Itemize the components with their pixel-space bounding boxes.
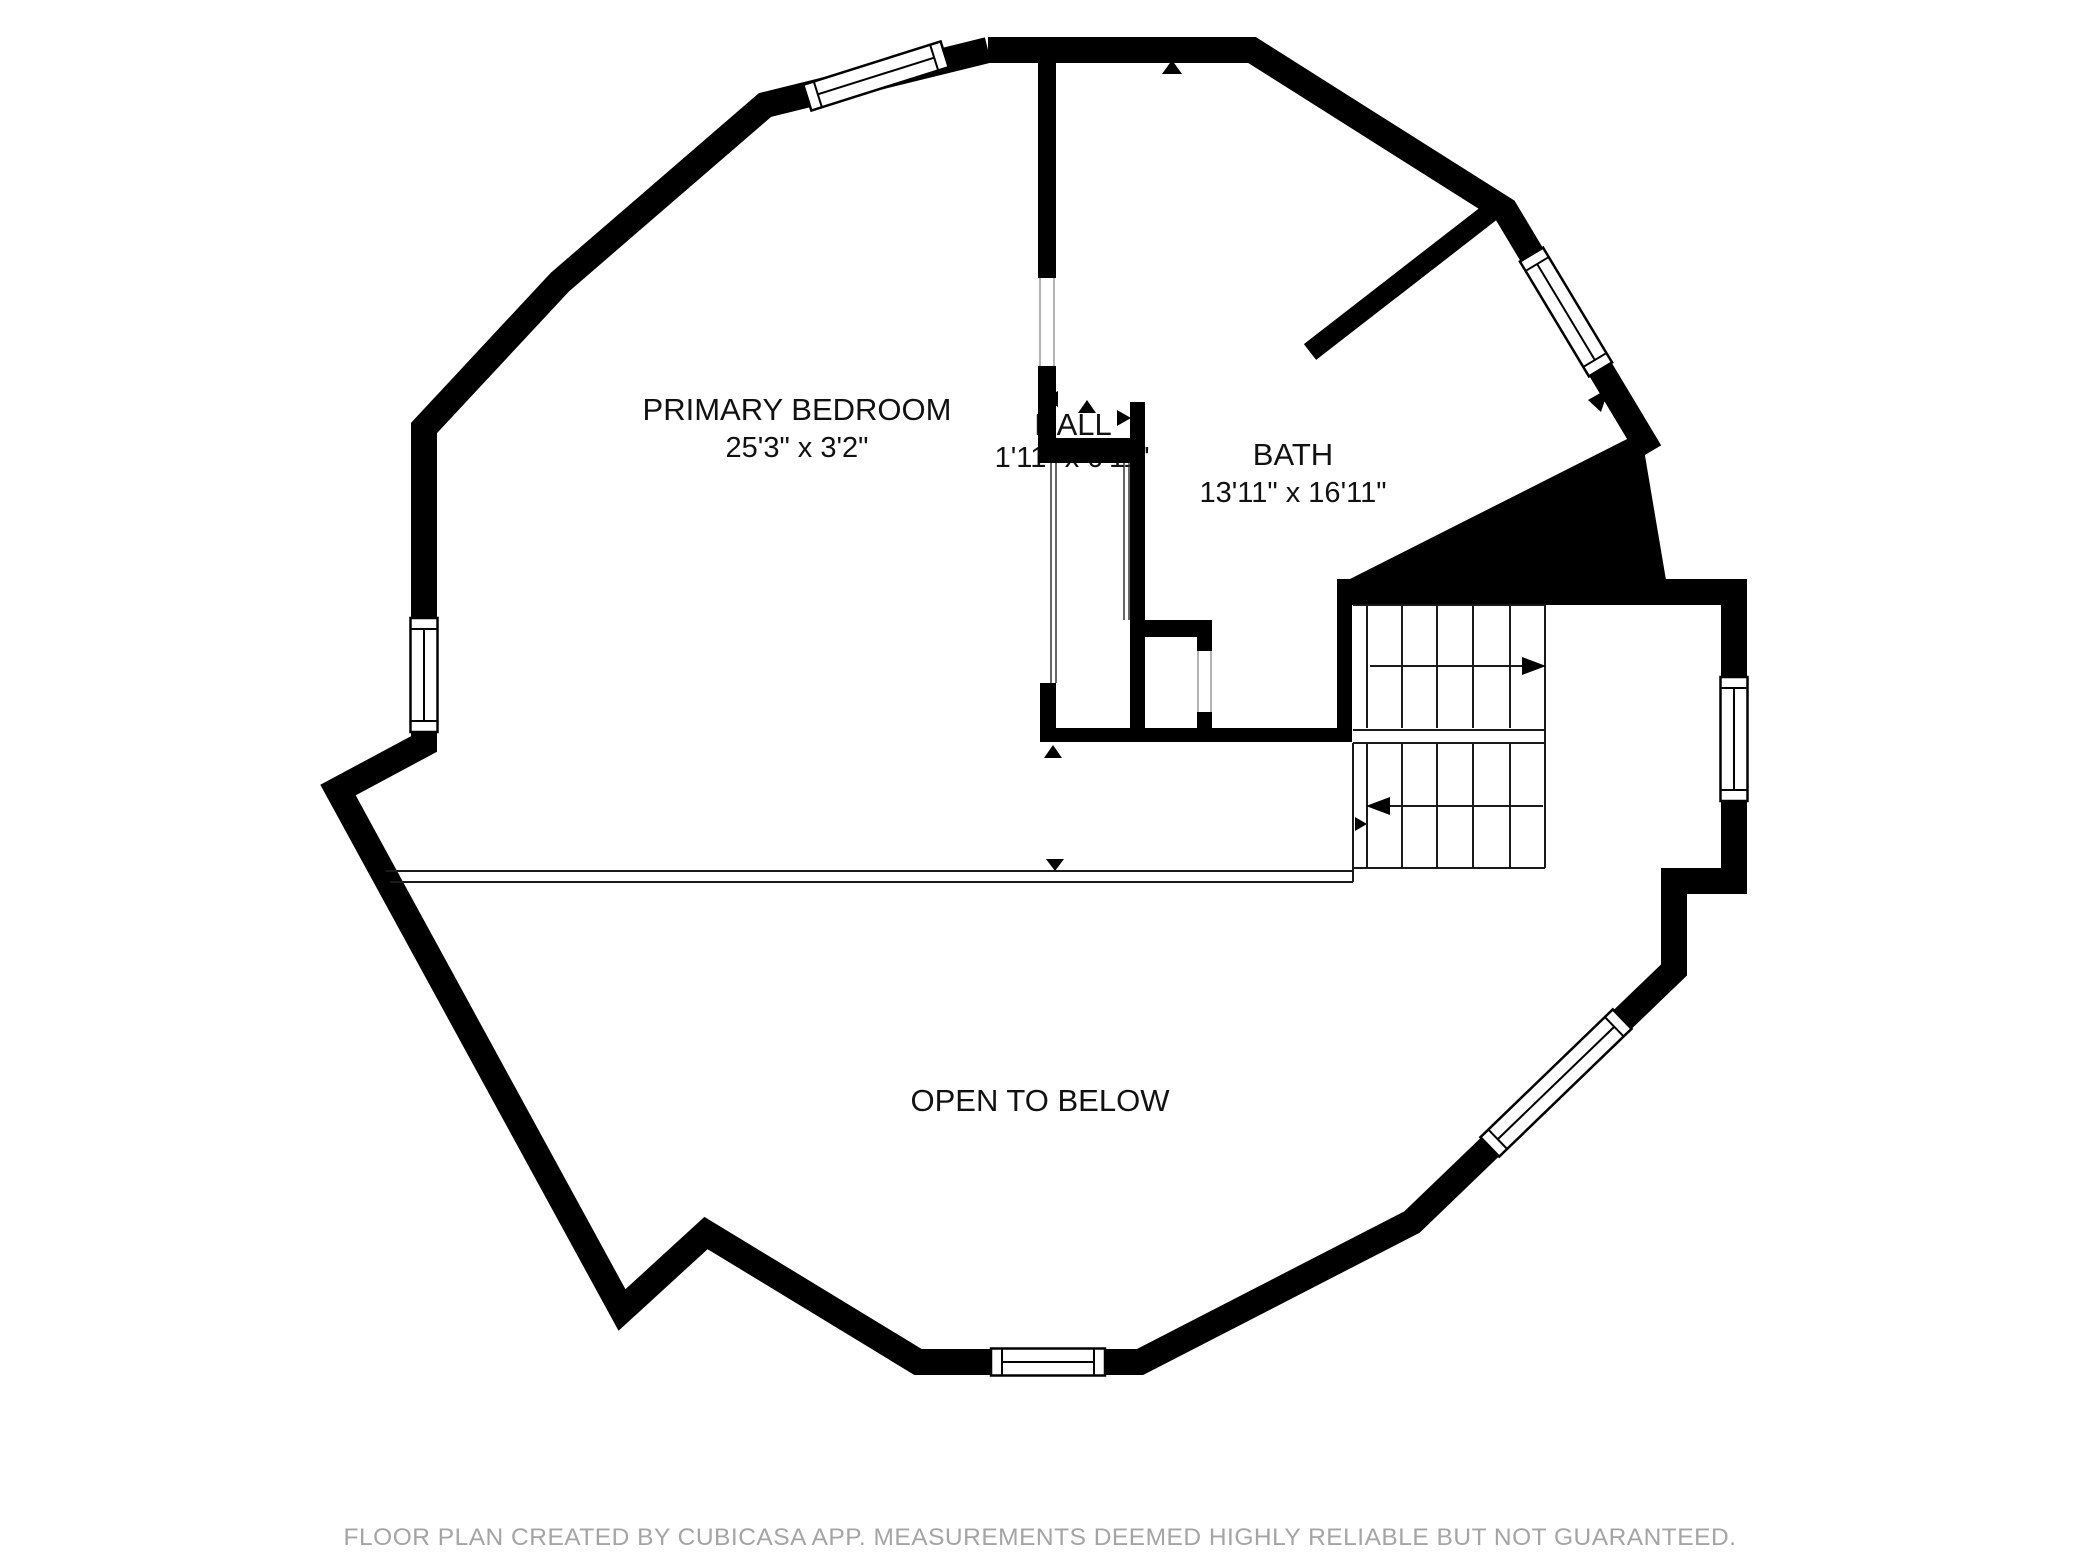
window-south bbox=[991, 1349, 1105, 1376]
stair-west-wall bbox=[1337, 592, 1352, 742]
staircase bbox=[1353, 605, 1546, 882]
landing-south-wall bbox=[1040, 728, 1352, 742]
room-label-bath: BATH 13'11" x 16'11" bbox=[1200, 437, 1387, 509]
closet-west-stub bbox=[1040, 683, 1056, 728]
stair-treads-upper bbox=[1353, 605, 1545, 868]
bath-diagonal-wall bbox=[1310, 207, 1497, 352]
bedroom-hall-divider-wall bbox=[1038, 62, 1056, 278]
window-east bbox=[1721, 677, 1748, 801]
bath-closet-wall bbox=[1130, 620, 1212, 637]
exterior-wall-north bbox=[988, 50, 1650, 452]
door-marker-right-icon bbox=[1117, 410, 1131, 426]
floorplan-page: HALL 1'11" x 0'11" bbox=[0, 0, 2080, 1560]
door-marker-down-icon bbox=[1046, 859, 1064, 871]
stair-section-top-wall bbox=[1337, 579, 1747, 605]
room-name-bath: BATH bbox=[1253, 437, 1333, 472]
door-marker-right-icon bbox=[1355, 817, 1367, 831]
wall-wedge bbox=[1348, 432, 1666, 580]
room-name-primary-bedroom: PRIMARY BEDROOM bbox=[643, 392, 952, 427]
footer-disclaimer: FLOOR PLAN CREATED BY CUBICASA APP. MEAS… bbox=[344, 1524, 1737, 1551]
room-dims-bath: 13'11" x 16'11" bbox=[1200, 477, 1387, 509]
window-southeast bbox=[1480, 1009, 1631, 1156]
hall-south-wall bbox=[1038, 438, 1145, 463]
door-marker-up-icon bbox=[1044, 745, 1062, 758]
room-label-primary-bedroom: PRIMARY BEDROOM 25'3" x 3'2" bbox=[643, 392, 952, 464]
window-west bbox=[411, 618, 438, 732]
window-northeast bbox=[1520, 248, 1612, 377]
closet-door-stub-top bbox=[1197, 637, 1212, 651]
room-name-open-to-below: OPEN TO BELOW bbox=[911, 1083, 1171, 1118]
bath-west-wall bbox=[1130, 402, 1145, 742]
stair-arrow-down bbox=[1366, 797, 1543, 815]
floorplan-drawing: HALL 1'11" x 0'11" bbox=[0, 0, 2080, 1560]
room-label-open-to-below: OPEN TO BELOW bbox=[911, 1083, 1171, 1118]
open-to-below-railing bbox=[386, 871, 1353, 882]
room-dims-primary-bedroom: 25'3" x 3'2" bbox=[726, 432, 869, 464]
stair-arrow-up bbox=[1370, 657, 1546, 675]
